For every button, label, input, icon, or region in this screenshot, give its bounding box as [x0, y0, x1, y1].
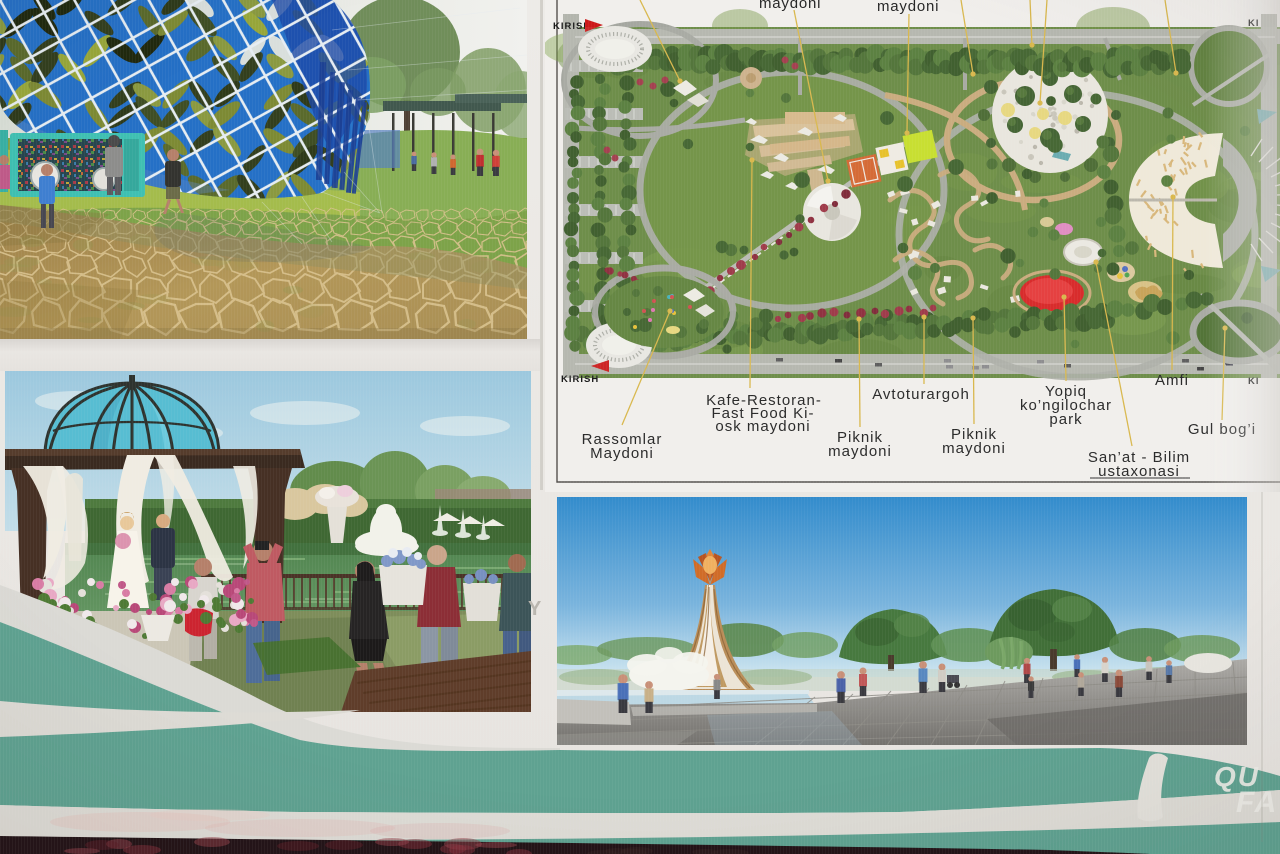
svg-text:ustaxonasi: ustaxonasi: [1098, 463, 1180, 480]
svg-text:FA: FA: [1236, 786, 1278, 819]
svg-text:maydoni: maydoni: [759, 0, 821, 12]
svg-text:Maydoni: Maydoni: [590, 445, 654, 462]
svg-text:maydoni: maydoni: [828, 443, 892, 460]
svg-text:park: park: [1049, 411, 1082, 428]
svg-text:Amfi: Amfi: [1155, 372, 1189, 389]
svg-text:osk maydoni: osk maydoni: [715, 418, 810, 435]
svg-text:maydoni: maydoni: [942, 440, 1006, 457]
svg-text:maydoni: maydoni: [877, 0, 939, 15]
svg-text:Avtoturargoh: Avtoturargoh: [872, 386, 970, 403]
